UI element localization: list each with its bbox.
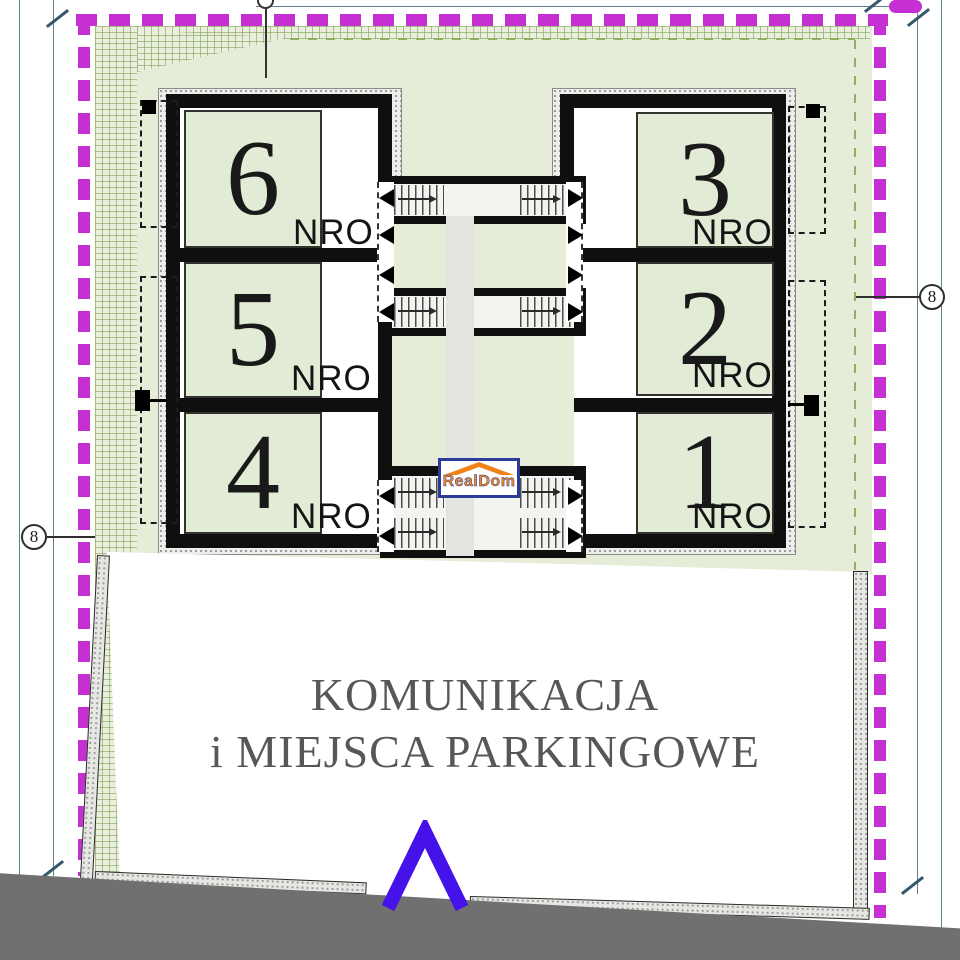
terrace-outline — [788, 106, 826, 234]
terrace-outline — [140, 100, 178, 228]
door-arrow-icon — [568, 266, 583, 284]
parking-label-line1: KOMUNIKACJA — [95, 666, 875, 723]
unit-number-4: 4 — [226, 419, 280, 527]
dimension-line-left — [53, 0, 54, 876]
dimension-line-left-outer — [19, 0, 20, 876]
unit-number-6: 6 — [226, 125, 280, 233]
parking-label-line2: i MIEJSCA PARKINGOWE — [95, 723, 875, 780]
door-arrow-icon — [379, 226, 394, 244]
stairwell-court — [392, 336, 574, 468]
stair-direction-arrow-icon — [522, 531, 554, 533]
survey-point-value: 8 — [928, 287, 937, 307]
nro-label-6: NRO — [293, 215, 374, 250]
stair-direction-arrow-icon — [398, 198, 430, 200]
dimension-tick — [901, 876, 924, 895]
central-corridor — [446, 216, 474, 556]
column-marker — [804, 395, 819, 416]
door-arrow-icon — [568, 303, 583, 321]
realdom-logo: RealDom — [438, 458, 520, 498]
plot-boundary-right — [874, 14, 886, 918]
stairwell-court — [392, 224, 574, 288]
door-arrow-icon — [379, 266, 394, 284]
column-marker-stub — [788, 403, 804, 406]
door-arrow-icon — [568, 189, 583, 207]
door-arrow-icon — [379, 189, 394, 207]
stair-flight — [520, 185, 572, 215]
survey-leader-right — [856, 296, 920, 298]
party-wall — [180, 398, 378, 412]
plot-boundary-top — [76, 14, 888, 26]
stair-direction-arrow-icon — [398, 491, 430, 493]
survey-leader-left — [46, 536, 95, 538]
site-plan-canvas: 6 5 4 3 2 1 — [0, 0, 960, 960]
dimension-line-top — [256, 6, 920, 7]
column-marker — [135, 390, 150, 411]
survey-stem-top — [265, 8, 267, 78]
nro-label-2: NRO — [692, 358, 773, 393]
plot-boundary-corner-marker — [889, 0, 922, 13]
setback-dashed-line-right — [854, 40, 856, 570]
dimension-tick — [46, 9, 69, 28]
logo-text: RealDom — [443, 474, 516, 490]
door-arrow-icon — [568, 527, 583, 545]
unit-number-5: 5 — [226, 276, 280, 384]
setback-dashed-line-top — [290, 38, 855, 40]
survey-point-badge-left: 8 — [21, 524, 47, 550]
stair-flight — [520, 297, 572, 327]
door-arrow-icon — [568, 487, 583, 505]
stair-direction-arrow-icon — [398, 310, 430, 312]
survey-point-badge-right: 8 — [919, 284, 945, 310]
survey-point-circle-top — [257, 0, 274, 9]
door-arrow-icon — [568, 226, 583, 244]
column-marker — [806, 104, 820, 118]
stair-flight — [520, 518, 572, 548]
nro-label-4: NRO — [291, 499, 372, 534]
survey-point-value: 8 — [30, 527, 39, 547]
column-marker-stub — [150, 399, 167, 402]
door-arrow-icon — [379, 527, 394, 545]
door-arrow-icon — [379, 303, 394, 321]
nro-label-3: NRO — [692, 215, 773, 250]
door-arrow-icon — [379, 487, 394, 505]
dimension-line-right — [917, 6, 918, 894]
stair-direction-arrow-icon — [522, 491, 554, 493]
stair-direction-arrow-icon — [522, 310, 554, 312]
parking-label: KOMUNIKACJA i MIEJSCA PARKINGOWE — [95, 666, 875, 780]
nro-label-1: NRO — [692, 499, 773, 534]
dimension-line-right-outer — [941, 0, 942, 928]
entrance-arrow-icon — [370, 820, 480, 915]
stair-flight — [520, 478, 572, 508]
party-wall — [574, 398, 772, 412]
stair-direction-arrow-icon — [522, 198, 554, 200]
stair-direction-arrow-icon — [398, 531, 430, 533]
column-marker — [142, 100, 156, 114]
nro-label-5: NRO — [291, 361, 372, 396]
